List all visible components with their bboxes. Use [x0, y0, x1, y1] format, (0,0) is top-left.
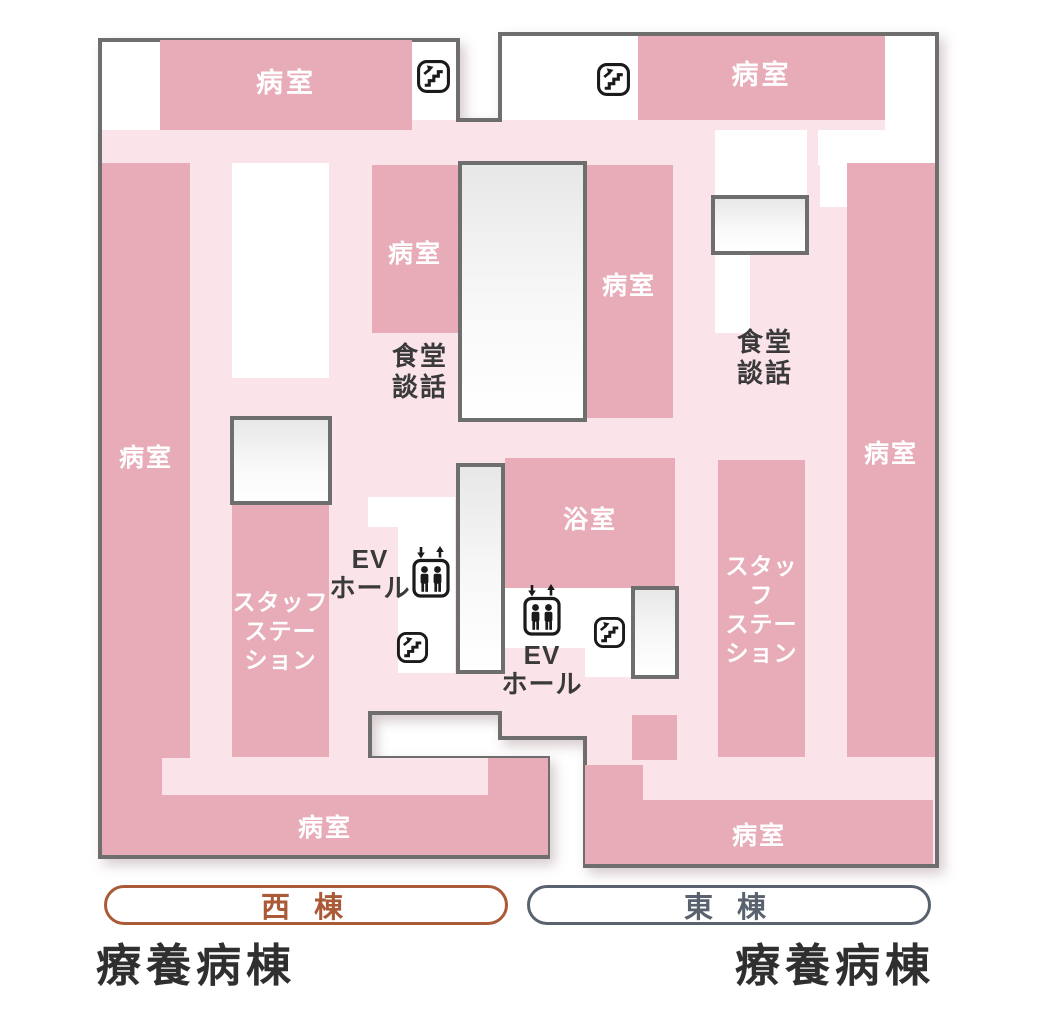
open-area-west-room [232, 163, 329, 378]
void-box-east-shaft [633, 588, 677, 677]
room-east-right [847, 163, 935, 757]
ward-label-east: 療養病棟 [735, 929, 935, 994]
stairs-icon [416, 59, 451, 99]
room-center [585, 165, 673, 418]
open-area-east-strip [818, 130, 935, 165]
room-west-top [160, 40, 412, 130]
ward-label-west: 療養病棟 [96, 929, 296, 994]
elevator-icon [412, 546, 450, 603]
void-box-center [460, 163, 585, 420]
elevator-icon [523, 584, 561, 641]
void-box-east-upper [713, 197, 807, 253]
floor-plan-canvas [0, 0, 1038, 1012]
room-west-mid [372, 165, 458, 333]
legend-west-wing: 西 棟 [104, 885, 508, 925]
building-footprint [100, 34, 937, 866]
stairs-icon [596, 62, 631, 102]
void-box-west-shaft [458, 465, 503, 672]
stairs-icon [396, 631, 429, 669]
room-east-small [632, 715, 677, 760]
open-area-west-ev-top [368, 497, 455, 527]
void-box-west-upper [232, 418, 330, 503]
open-area-east-dining-top [715, 130, 807, 197]
room-east-bottom [585, 800, 933, 864]
legend-east-wing: 東 棟 [527, 885, 931, 925]
open-area-west-topleft [102, 42, 160, 130]
room-bath [505, 458, 675, 588]
room-west-left [102, 163, 190, 758]
stairs-icon [593, 616, 626, 654]
floor-plan: 病室 病室 病室 病室 病室 病室 浴室 病室 病室 スタッフ ステー ション … [0, 0, 1038, 1012]
room-staff-west [232, 503, 329, 757]
room-east-bottom-annex [585, 765, 643, 805]
corridor-west-bottom [162, 758, 488, 795]
open-area-east-topright [885, 36, 935, 130]
room-east-top [638, 36, 885, 120]
open-area-east-strip2 [820, 165, 847, 207]
room-staff-east [718, 460, 805, 757]
